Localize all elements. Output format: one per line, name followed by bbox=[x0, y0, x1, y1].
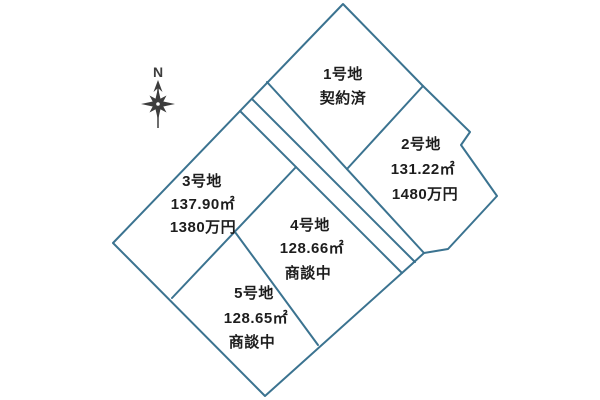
lot-2-area: 131.22㎡ bbox=[391, 160, 455, 178]
lot-5-area: 128.65㎡ bbox=[224, 309, 288, 327]
lot-3-area: 137.90㎡ bbox=[171, 195, 235, 213]
land-plot-map: 1号地 契約済 2号地 131.22㎡ 1480万円 3号地 137.90㎡ 1… bbox=[0, 0, 600, 400]
lot-3-name: 3号地 bbox=[182, 172, 222, 190]
lot-2-name: 2号地 bbox=[401, 135, 441, 153]
compass-rose: N bbox=[141, 64, 175, 128]
lot-5-status: 商談中 bbox=[229, 333, 276, 351]
lot-1-status: 契約済 bbox=[319, 89, 367, 107]
lot-2-price: 1480万円 bbox=[392, 186, 458, 203]
compass-north-label: N bbox=[153, 64, 163, 80]
lot-1-name: 1号地 bbox=[323, 65, 363, 83]
lot-4-area: 128.66㎡ bbox=[280, 239, 344, 257]
lot-4-name: 4号地 bbox=[290, 216, 330, 234]
lot-4-status: 商談中 bbox=[285, 264, 332, 282]
plot-map-canvas: 1号地 契約済 2号地 131.22㎡ 1480万円 3号地 137.90㎡ 1… bbox=[0, 0, 600, 400]
lot-5-name: 5号地 bbox=[234, 284, 274, 302]
compass-center-dot bbox=[156, 102, 160, 106]
lot-3-price: 1380万円 bbox=[170, 219, 236, 236]
